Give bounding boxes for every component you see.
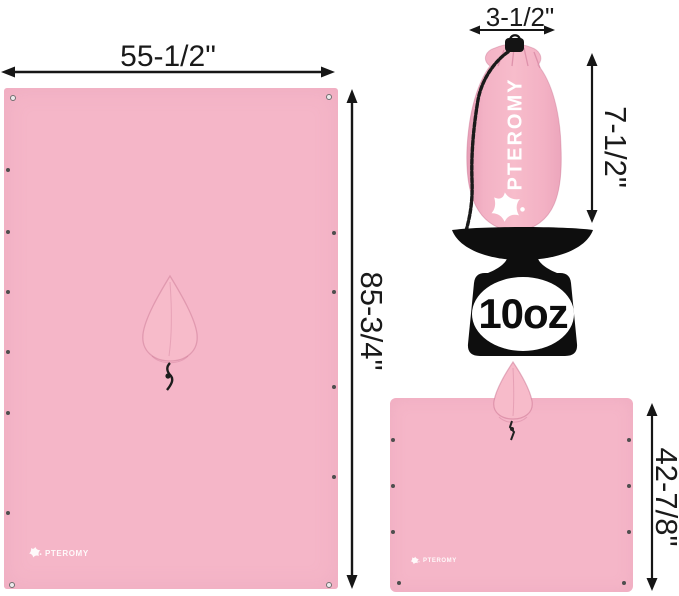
grommet-eyelet: [391, 484, 395, 488]
grommet-eyelet: [391, 438, 395, 442]
grommet-eyelet: [332, 475, 336, 479]
grommet-eyelet: [6, 511, 10, 515]
sack-brand-text: PTEROMY: [505, 78, 528, 191]
grommet-eyelet: [6, 290, 10, 294]
grommet-eyelet: [332, 290, 336, 294]
poncho-brand-text: PTEROMY: [423, 558, 457, 564]
tarp-width-arrow: [0, 65, 336, 79]
grommet-eyelet: [6, 350, 10, 354]
weight-readout: 10oz: [463, 292, 583, 336]
grommet-eyelet: [332, 231, 336, 235]
grommet-eyelet: [627, 484, 631, 488]
pteromy-mascot-icon: [485, 187, 529, 231]
grommet-eyelet: [326, 582, 332, 588]
cord-lock-toggle: [505, 38, 524, 52]
grommet-eyelet: [627, 438, 631, 442]
grommet-eyelet: [391, 530, 395, 534]
grommet-eyelet: [326, 94, 332, 100]
poncho-brand-logo: PTEROMY: [410, 556, 457, 566]
tarp-height-arrow: [345, 88, 359, 590]
grommet-eyelet: [397, 581, 401, 585]
grommet-eyelet: [627, 530, 631, 534]
sack-height-arrow: [585, 52, 599, 224]
grommet-eyelet: [9, 582, 15, 588]
grommet-eyelet: [332, 385, 336, 389]
poncho-height-arrow: [645, 402, 659, 592]
pteromy-mascot-icon: [28, 546, 42, 560]
grommet-eyelet: [6, 230, 10, 234]
grommet-eyelet: [6, 168, 10, 172]
poncho-hood: [482, 358, 544, 442]
sack-height-dimension-label: 7-1/2": [597, 106, 633, 188]
tarp-brand-text: PTEROMY: [45, 549, 89, 558]
grommet-eyelet: [622, 581, 626, 585]
pteromy-poncho-dimensions-infographic: PTEROMY 55-1/2" 85-3/4" 3-1/2" PT: [0, 0, 679, 596]
tarp-brand-logo: PTEROMY: [28, 546, 89, 560]
pteromy-mascot-icon: [410, 556, 420, 566]
grommet-eyelet: [10, 95, 16, 101]
grommet-eyelet: [6, 411, 10, 415]
tarp-center-hood: [126, 270, 214, 392]
